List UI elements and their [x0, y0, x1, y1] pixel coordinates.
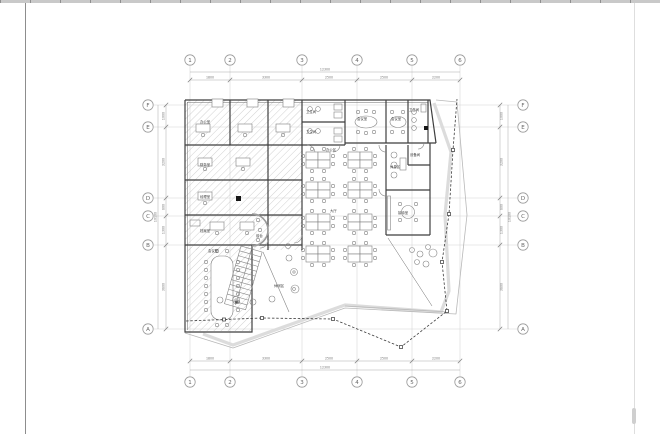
grid-bubble-label: A	[521, 327, 525, 333]
room-label: 休息区	[390, 164, 401, 169]
grid-bubble-label: 2	[228, 380, 232, 386]
dimension-label: 3300	[262, 76, 270, 80]
dimension-label: 2500	[325, 357, 333, 361]
dimension-label: 1800	[206, 357, 214, 361]
grid-bubble-label: C	[521, 214, 525, 220]
grid-bubble-label: 4	[355, 58, 359, 64]
dimension-label: 2200	[432, 357, 440, 361]
dimension-label: 1300	[162, 226, 166, 234]
grid-bubble-label: A	[146, 327, 150, 333]
cad-floorplan-view: 1800 3300 2500 2500 2200 12300 1800 3300…	[0, 0, 660, 434]
room-label: 卫生间	[306, 109, 317, 114]
grid-bubble-label: 3	[300, 380, 304, 386]
dimension-label: 2500	[325, 76, 333, 80]
stair-direction-label: 上	[250, 255, 254, 260]
dimension-label: 1000	[500, 112, 504, 120]
dimension-label: 10100	[154, 212, 158, 222]
room-label: 办公室	[200, 119, 211, 124]
grid-bubble-label: 2	[228, 58, 232, 64]
dimension-label: 2500	[380, 76, 388, 80]
dimension-label: 3200	[500, 158, 504, 166]
room-label: 档案室	[200, 228, 211, 233]
grid-bubble-label: 5	[410, 58, 414, 64]
room-label: 财务室	[200, 162, 211, 167]
dimension-label: 2500	[380, 357, 388, 361]
grid-bubble-label: 1	[188, 58, 192, 64]
room-label: 卫生间	[306, 129, 317, 134]
room-label: 经理室	[200, 194, 211, 199]
dimension-label: 12300	[320, 366, 330, 370]
room-label: 接待室	[398, 210, 409, 215]
grid-bubble-label: 1	[188, 380, 192, 386]
room-label: 办公区	[326, 147, 337, 152]
meeting-tables	[355, 109, 406, 134]
grid-bubble-label: C	[146, 214, 150, 220]
grid-bubble-label: B	[521, 243, 525, 249]
grid-bubble-label: F	[146, 103, 149, 109]
reception-furniture	[388, 152, 418, 230]
grid-bubble-label: B	[146, 243, 150, 249]
grid-bubble-label: D	[146, 196, 150, 202]
grid-bubble-label: 4	[355, 380, 359, 386]
dimension-label: 1000	[162, 112, 166, 120]
grid-bubble-label: 6	[458, 58, 462, 64]
floor-plan-canvas[interactable]: 1800 3300 2500 2500 2200 12300 1800 3300…	[0, 0, 660, 434]
room-label: 会议室	[357, 116, 368, 121]
room-label: 会议室	[208, 248, 219, 253]
dimension-label: 1300	[500, 226, 504, 234]
grid-bubble-label: F	[521, 103, 524, 109]
shaft-marker	[424, 126, 428, 130]
room-label: 前台	[256, 233, 263, 238]
room-label: 卫生间	[409, 107, 420, 112]
grid-bubble-label: E	[521, 125, 525, 131]
dimension-label: 800	[500, 204, 504, 210]
dimension-label: 3800	[162, 283, 166, 291]
dimension-label: 10100	[508, 212, 512, 222]
grid-bubble-label: 6	[458, 380, 462, 386]
room-label: 大厅	[330, 208, 337, 213]
dimension-label: 2200	[432, 76, 440, 80]
dimension-label: 3300	[262, 357, 270, 361]
grid-bubble-label: 5	[410, 380, 414, 386]
shaft-marker	[236, 196, 241, 201]
grid-bubble-label: E	[146, 125, 150, 131]
dimension-label: 1800	[206, 76, 214, 80]
room-label: 设备间	[410, 152, 421, 157]
workstation-clusters	[301, 147, 376, 266]
dimension-label: 800	[162, 204, 166, 210]
room-label: 休闲区	[274, 283, 285, 288]
room-label: 会议室	[391, 116, 402, 121]
dimension-label: 3200	[162, 158, 166, 166]
dimension-label: 12300	[320, 68, 330, 72]
dimension-label: 3800	[500, 283, 504, 291]
grid-bubble-label: 3	[300, 58, 304, 64]
grid-bubble-label: D	[521, 196, 525, 202]
